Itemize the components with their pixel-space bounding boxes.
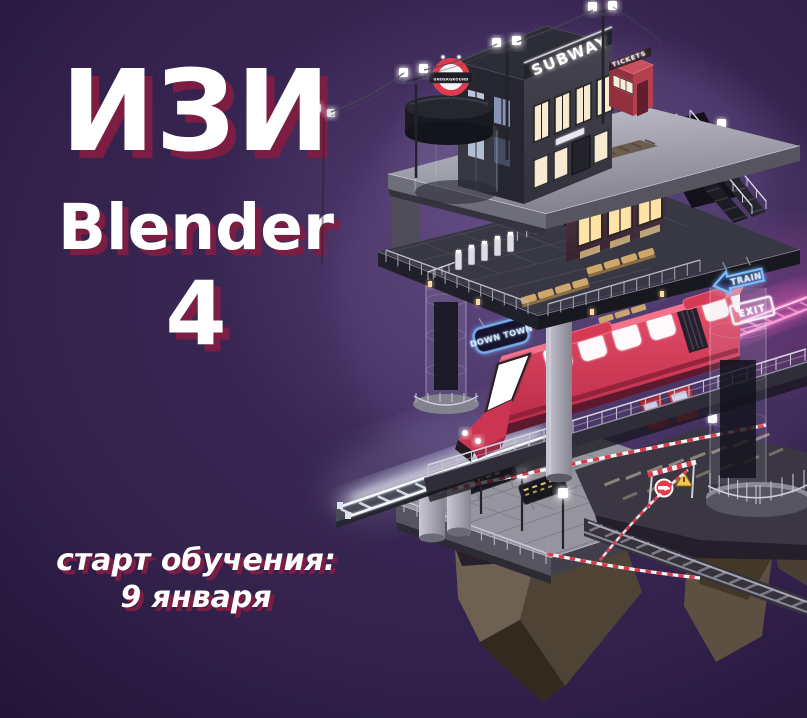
svg-text:UNDERGROUND: UNDERGROUND	[433, 77, 468, 81]
street-lamp	[310, 101, 338, 265]
poster: ИЗИ Blender 4 старт обучения: 9 января	[0, 0, 807, 718]
station-illustration: DOWN TOWN EXIT	[0, 0, 807, 718]
support-column	[546, 314, 572, 483]
